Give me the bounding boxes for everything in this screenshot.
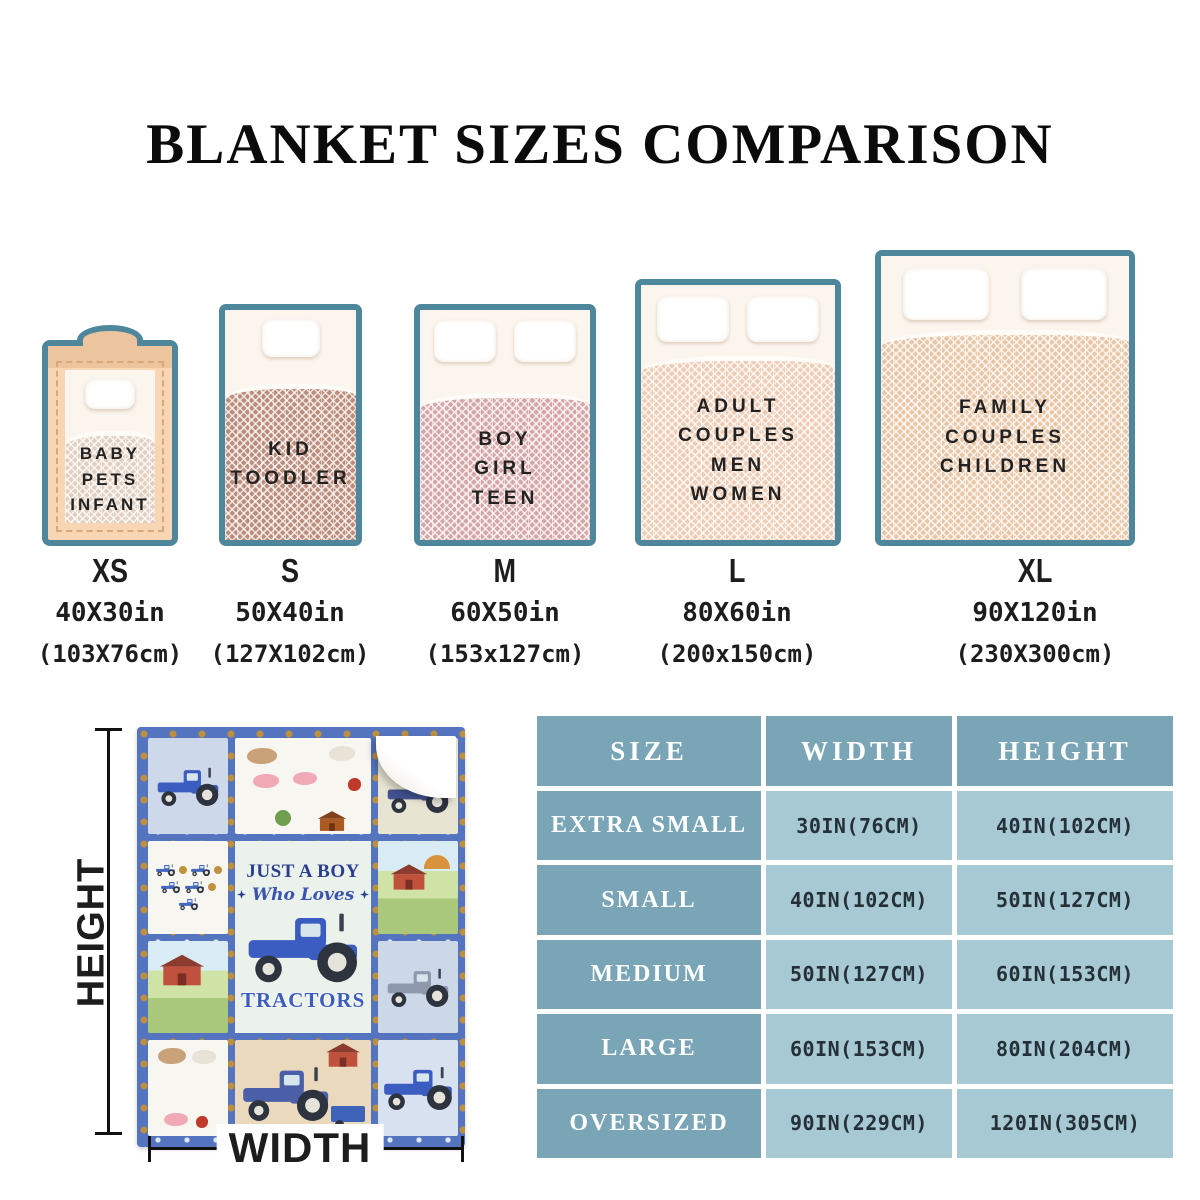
size-inches: 50X40in: [170, 598, 410, 628]
width-arrow-right-cap: [461, 1136, 464, 1162]
bed-sheet: [420, 310, 590, 397]
table-row-label: SMALL: [537, 865, 761, 934]
panel-mini-tractors: [148, 841, 228, 934]
table-cell-height: 60IN(153CM): [957, 940, 1173, 1009]
bed-audience-line: TEEN: [472, 484, 539, 513]
tractor-icon: [154, 764, 222, 809]
table-row-label: OVERSIZED: [537, 1089, 761, 1158]
tractor-icon: [178, 897, 199, 911]
horse-blob: [247, 748, 277, 764]
panel-tractor-trailer: [235, 1040, 371, 1136]
blanket-product-photo: JUST A BOY Who Loves TRACTORS: [137, 727, 465, 1147]
crib-mattress: BABY PETS INFANT: [65, 370, 155, 523]
bed-blanket: ADULT COUPLES MEN WOMEN: [641, 356, 835, 540]
bed-blanket: BOY GIRL TEEN: [420, 393, 590, 540]
pig-blob: [253, 774, 279, 788]
sparkle-icon: [360, 890, 369, 899]
sparkle-icon: [237, 890, 246, 899]
bed-audience-line: COUPLES: [945, 423, 1065, 452]
panel-farm-animals-2: [148, 1040, 228, 1136]
bed-sheet: [881, 256, 1129, 336]
bed-audience-line: GIRL: [474, 454, 535, 483]
size-inches: 90X120in: [915, 598, 1155, 628]
gold-dot: [208, 883, 216, 891]
table-cell-height: 120IN(305CM): [957, 1089, 1173, 1158]
tractor-icon: [190, 863, 211, 877]
pillow: [85, 379, 135, 409]
tree-blob: [275, 810, 291, 826]
width-dimension-label: WIDTH: [217, 1124, 384, 1172]
bed-audience-line: WOMEN: [691, 480, 786, 509]
bed-audience-line: PETS: [82, 467, 138, 493]
table-cell-width: 50IN(127CM): [766, 940, 952, 1009]
bed-audience-line: CHILDREN: [940, 452, 1070, 481]
panel-blue-tractor: [148, 738, 228, 834]
bed-audience-line: COUPLES: [678, 421, 798, 450]
chicken-blob: [196, 1116, 208, 1128]
panel-farm-animals: [235, 738, 371, 834]
pillow: [903, 268, 989, 320]
panel-center-text: JUST A BOY Who Loves TRACTORS: [235, 841, 371, 1033]
blanket-patchwork-grid: JUST A BOY Who Loves TRACTORS: [148, 738, 454, 1136]
bed-audience-line: INFANT: [70, 492, 149, 518]
pillow: [1021, 268, 1107, 320]
size-cm: (200x150cm): [617, 640, 857, 668]
pillow: [262, 319, 320, 357]
table-cell-height: 40IN(102CM): [957, 791, 1173, 860]
table-cell-width: 60IN(153CM): [766, 1014, 952, 1083]
size-cm: (230X300cm): [915, 640, 1155, 668]
tractor-icon: [238, 1062, 333, 1124]
size-code: S: [281, 552, 299, 590]
sheep-blob: [329, 746, 355, 761]
size-code: XL: [1018, 552, 1053, 590]
size-code: M: [494, 552, 517, 590]
table-header-width: WIDTH: [766, 716, 952, 786]
barn-icon: [315, 810, 349, 832]
cow-blob: [192, 1050, 216, 1064]
caption-m: M 60X50in (153x127cm): [385, 552, 625, 668]
tractor-icon-large: [242, 907, 364, 987]
bed-audience-line: BABY: [80, 441, 140, 467]
table-header-height: HEIGHT: [957, 716, 1173, 786]
table-cell-height: 50IN(127CM): [957, 865, 1173, 934]
tractor-icon: [380, 1063, 456, 1113]
table-row-label: LARGE: [537, 1014, 761, 1083]
bed-sheet: [641, 285, 835, 362]
size-chart-table: SIZE WIDTH HEIGHT EXTRA SMALL 30IN(76CM)…: [537, 716, 1173, 1158]
table-cell-height: 80IN(204CM): [957, 1014, 1173, 1083]
bed-audience-line: TOODLER: [230, 464, 351, 493]
bed-m: BOY GIRL TEEN: [414, 304, 596, 546]
bed-audience-line: FAMILY: [959, 393, 1051, 422]
page-title: BLANKET SIZES COMPARISON: [0, 112, 1200, 177]
tractor-icon: [384, 965, 452, 1010]
bed-audience-line: BOY: [478, 425, 531, 454]
pillow: [434, 320, 496, 362]
panel-grey-tractor: [378, 941, 458, 1034]
bed-sheet: [225, 310, 356, 388]
pillow: [747, 296, 819, 342]
table-cell-width: 30IN(76CM): [766, 791, 952, 860]
product-title-line1: JUST A BOY: [246, 861, 359, 883]
blanket-size-infographic: BLANKET SIZES COMPARISON BABY PETS INFAN…: [0, 0, 1200, 1200]
gold-dot: [214, 866, 222, 874]
product-title-line3: TRACTORS: [241, 988, 365, 1013]
barn-icon: [156, 953, 208, 987]
bed-audience-line: KID: [268, 435, 313, 464]
bed-xl: FAMILY COUPLES CHILDREN: [875, 250, 1135, 546]
height-dimension-label: HEIGHT: [72, 822, 112, 1042]
panel-red-barn-field: [148, 941, 228, 1034]
pig-blob: [293, 772, 317, 785]
bed-sheet: [65, 370, 155, 434]
size-code: L: [729, 552, 746, 590]
table-header-size: SIZE: [537, 716, 761, 786]
tractor-icon: [160, 880, 181, 894]
bed-blanket: KID TOODLER: [225, 384, 356, 540]
table-row-label: MEDIUM: [537, 940, 761, 1009]
height-arrow-bottom-cap: [95, 1132, 122, 1135]
caption-l: L 80X60in (200x150cm): [617, 552, 857, 668]
bed-blanket: FAMILY COUPLES CHILDREN: [881, 330, 1129, 540]
bed-audience-line: MEN: [711, 451, 765, 480]
bed-l: ADULT COUPLES MEN WOMEN: [635, 279, 841, 546]
trailer: [331, 1106, 365, 1122]
crib-pad: BABY PETS INFANT: [48, 346, 172, 540]
barn-icon: [323, 1042, 363, 1068]
bed-blanket: BABY PETS INFANT: [65, 431, 155, 523]
product-title-line2: Who Loves: [237, 885, 369, 905]
table-cell-width: 40IN(102CM): [766, 865, 952, 934]
pillow: [514, 320, 576, 362]
caption-s: S 50X40in (127X102cm): [170, 552, 410, 668]
bed-s: KID TOODLER: [219, 304, 362, 546]
table-cell-width: 90IN(229CM): [766, 1089, 952, 1158]
crib-headboard: [48, 346, 172, 368]
gold-dot: [179, 866, 187, 874]
size-cm: (127X102cm): [170, 640, 410, 668]
height-label-text: HEIGHT: [71, 857, 114, 1007]
bed-audience-line: ADULT: [697, 392, 780, 421]
pillow: [657, 296, 729, 342]
tractor-icon: [184, 880, 205, 894]
size-inches: 60X50in: [385, 598, 625, 628]
tractor-icon: [155, 863, 176, 877]
panel-big-blue-tractor: [378, 1040, 458, 1136]
size-inches: 80X60in: [617, 598, 857, 628]
size-code: XS: [92, 552, 128, 590]
table-row-label: EXTRA SMALL: [537, 791, 761, 860]
rooster-blob: [348, 778, 361, 791]
pig-blob: [164, 1113, 188, 1126]
bed-xs: BABY PETS INFANT: [42, 340, 178, 546]
barn-icon: [388, 863, 430, 891]
horse-blob: [158, 1048, 186, 1064]
product-title-line2-text: Who Loves: [252, 885, 354, 905]
size-cm: (153x127cm): [385, 640, 625, 668]
panel-farm-landscape: [378, 841, 458, 934]
caption-xl: XL 90X120in (230X300cm): [915, 552, 1155, 668]
